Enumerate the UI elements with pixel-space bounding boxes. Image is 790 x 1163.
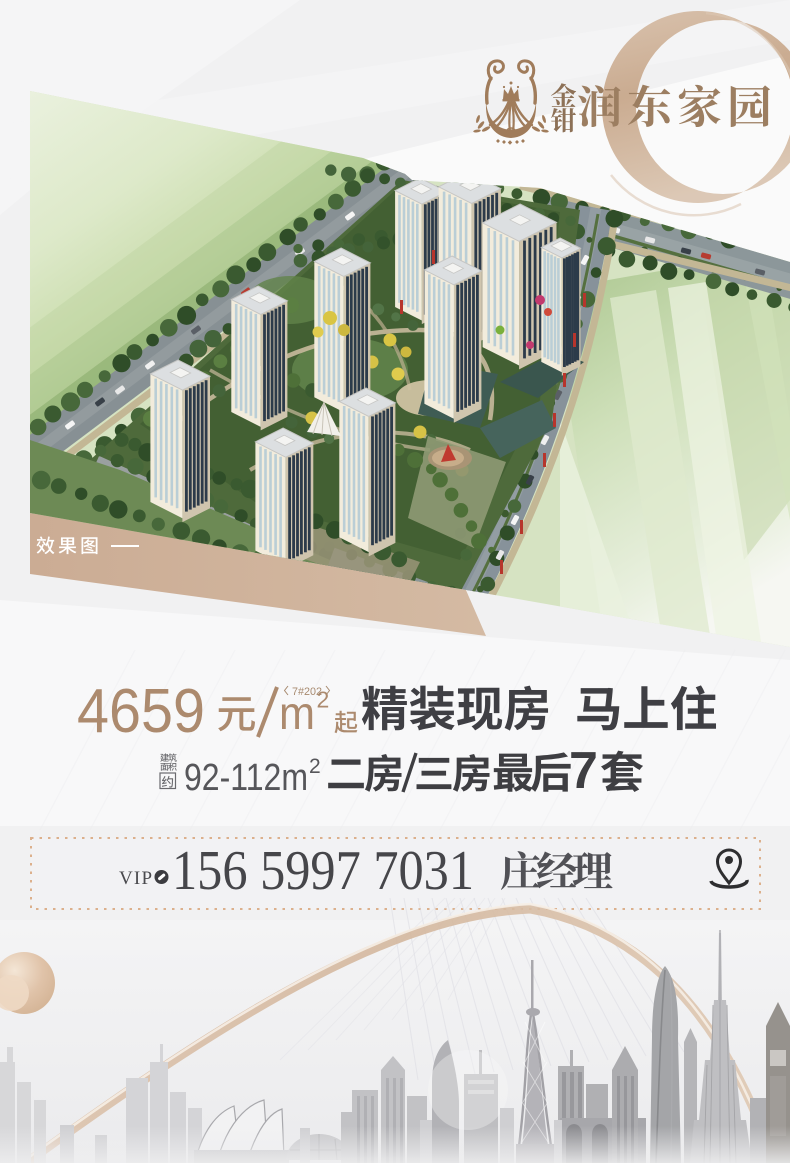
- svg-text:4659: 4659: [77, 677, 205, 746]
- svg-text:156 5997 7031: 156 5997 7031: [172, 840, 474, 902]
- svg-text:VIP: VIP: [119, 868, 153, 889]
- svg-text:92-112m: 92-112m: [184, 757, 308, 799]
- svg-text:7: 7: [569, 742, 598, 800]
- svg-text:7#202: 7#202: [292, 686, 322, 698]
- svg-text:2: 2: [309, 755, 321, 778]
